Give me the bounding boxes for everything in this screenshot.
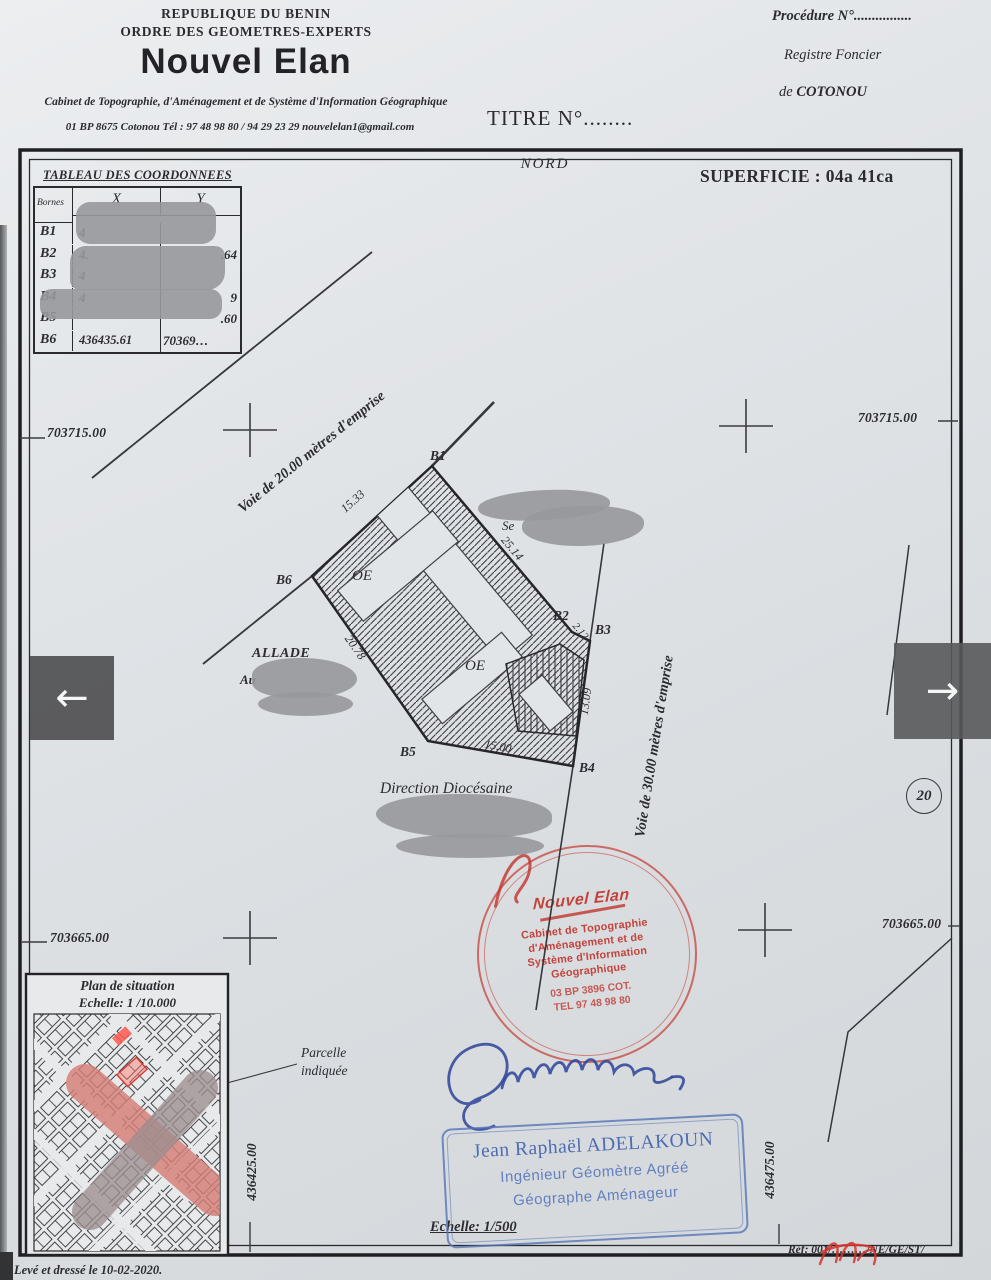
col-header-bornes: Bornes: [35, 188, 73, 223]
borne-label-b6: B6: [276, 572, 292, 588]
situation-title: Plan de situation: [40, 978, 215, 994]
redaction-blob: [376, 794, 552, 838]
oe-label-1: OE: [352, 568, 372, 585]
next-arrow-icon: →: [926, 668, 960, 714]
registre-city-line: de COTONOU: [779, 84, 867, 101]
grid-label-se: 703665.00: [882, 916, 941, 932]
ref-scribble: [812, 1228, 892, 1273]
carousel-next-button[interactable]: →: [894, 643, 991, 739]
paper-edge-shadow: [0, 225, 7, 1280]
vertical-coord-left: 436425.00: [244, 1126, 260, 1218]
borne-cell: B2: [35, 245, 73, 266]
map-marks: [85, 1026, 215, 1212]
redaction-blob: [76, 202, 216, 244]
firm-name: Nouvel Elan: [30, 42, 462, 82]
header-subtitle: Cabinet de Topographie, d'Aménagement et…: [22, 96, 470, 108]
road-20m-label: Voie de 20.00 mètres d'emprise: [202, 361, 423, 544]
lot-number: 20: [917, 788, 932, 805]
redaction-blob: [258, 692, 353, 716]
nord-label: NORD: [505, 156, 585, 173]
dim-label-15-00: 15.00: [473, 735, 523, 758]
redaction-blob: [522, 506, 644, 546]
borne-label-b1: B1: [430, 448, 446, 464]
borne-label-b4: B4: [579, 760, 595, 776]
redaction-blob: [40, 289, 222, 319]
parcelle-indiquee-label: Parcelle indiquée: [301, 1044, 389, 1079]
scanned-survey-document: REPUBLIQUE DU BENIN ORDRE DES GEOMETRES-…: [0, 0, 991, 1280]
oe-label-2: OE: [465, 658, 485, 675]
header-order-label: ORDRE DES GEOMETRES-EXPERTS: [30, 24, 462, 40]
grid-label-sw: 703665.00: [50, 930, 109, 946]
grid-label-ne: 703715.00: [858, 410, 917, 426]
situation-map: [25, 974, 230, 1260]
x-cell: 436435.61: [73, 331, 161, 353]
header-contact: 01 BP 8675 Cotonou Tél : 97 48 98 80 / 9…: [30, 121, 450, 133]
y-cell: 70369…: [161, 331, 240, 353]
paper-corner-shadow: [0, 1252, 13, 1280]
borne-label-b3: B3: [595, 622, 611, 638]
borne-cell: B6: [35, 331, 73, 352]
dim-label-13-09: 13.09: [575, 677, 597, 727]
leve-date-label: Levé et dressé le 10-02-2020.: [14, 1263, 162, 1278]
grid-label-nw: 703715.00: [47, 425, 106, 441]
borne-label-b5: B5: [400, 744, 416, 760]
dim-label-15-33: 15.33: [330, 480, 376, 523]
dim-label-2-12: 2.12: [560, 610, 599, 654]
carousel-prev-button[interactable]: ←: [30, 656, 114, 740]
redaction-blob: [396, 834, 544, 858]
parcel-subarea: [506, 644, 584, 736]
registre-city-label: COTONOU: [796, 84, 867, 100]
procedure-number-label: Procédure N°................: [772, 8, 912, 25]
coord-table-title: TABLEAU DES COORDONNEES: [33, 168, 242, 183]
redaction-blob: [70, 246, 225, 290]
registre-de: de: [779, 84, 796, 100]
header-country-label: REPUBLIQUE DU BENIN: [30, 6, 462, 22]
superficie-label: SUPERFICIE : 04a 41ca: [700, 166, 938, 187]
road-30m-label: Voie de 30.00 mètres d'emprise: [627, 622, 683, 872]
borne-cell: B3: [35, 266, 73, 287]
titre-number-label: TITRE N°........: [487, 106, 633, 131]
map-streets: [25, 980, 230, 1260]
borne-cell: B1: [35, 223, 73, 244]
lot-number-badge: 20: [906, 778, 942, 814]
situation-scale: Echelle: 1 /10.000: [40, 995, 215, 1011]
prev-arrow-icon: ←: [55, 675, 89, 721]
blue-stamp: Jean Raphaël ADELAKOUN Ingénieur Géomètr…: [441, 1113, 749, 1249]
registre-foncier-label: Registre Foncier: [784, 47, 881, 64]
